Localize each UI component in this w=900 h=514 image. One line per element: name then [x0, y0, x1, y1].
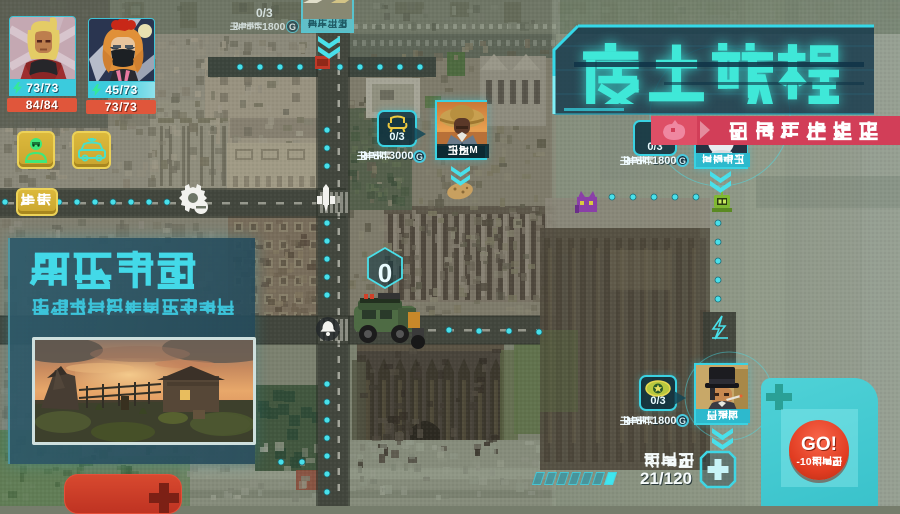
svg-text:0: 0	[378, 258, 392, 288]
